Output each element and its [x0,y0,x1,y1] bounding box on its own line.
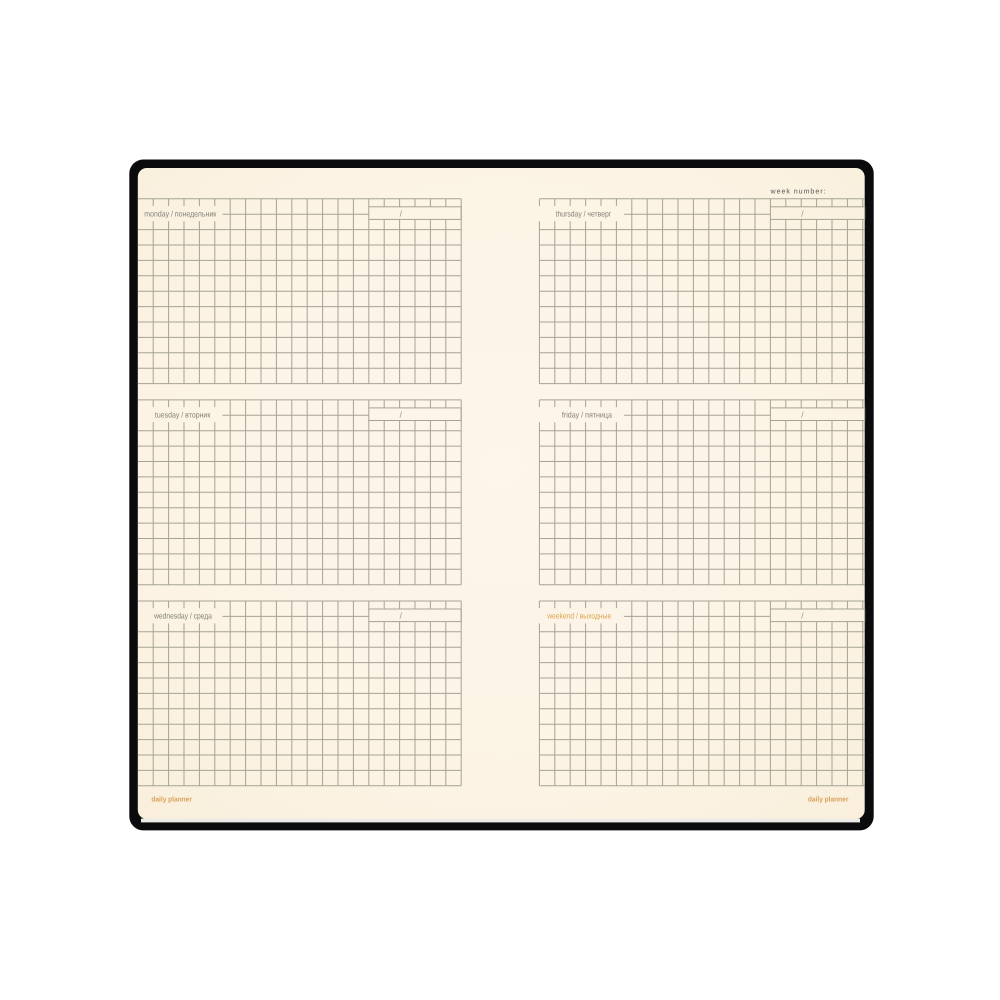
svg-text:friday / пятница: friday / пятница [562,411,612,420]
svg-text:wednesday / среда: wednesday / среда [153,612,212,621]
svg-text:daily planner: daily planner [808,795,849,804]
svg-text:week number:: week number: [770,187,827,195]
svg-text:thursday / четверг: thursday / четверг [556,209,612,218]
svg-text:weekend / выходные: weekend / выходные [546,612,611,621]
svg-text:tuesday / вторник: tuesday / вторник [155,411,211,420]
svg-text:monday / понедельник: monday / понедельник [144,209,216,218]
svg-text:daily planner: daily planner [151,795,192,804]
